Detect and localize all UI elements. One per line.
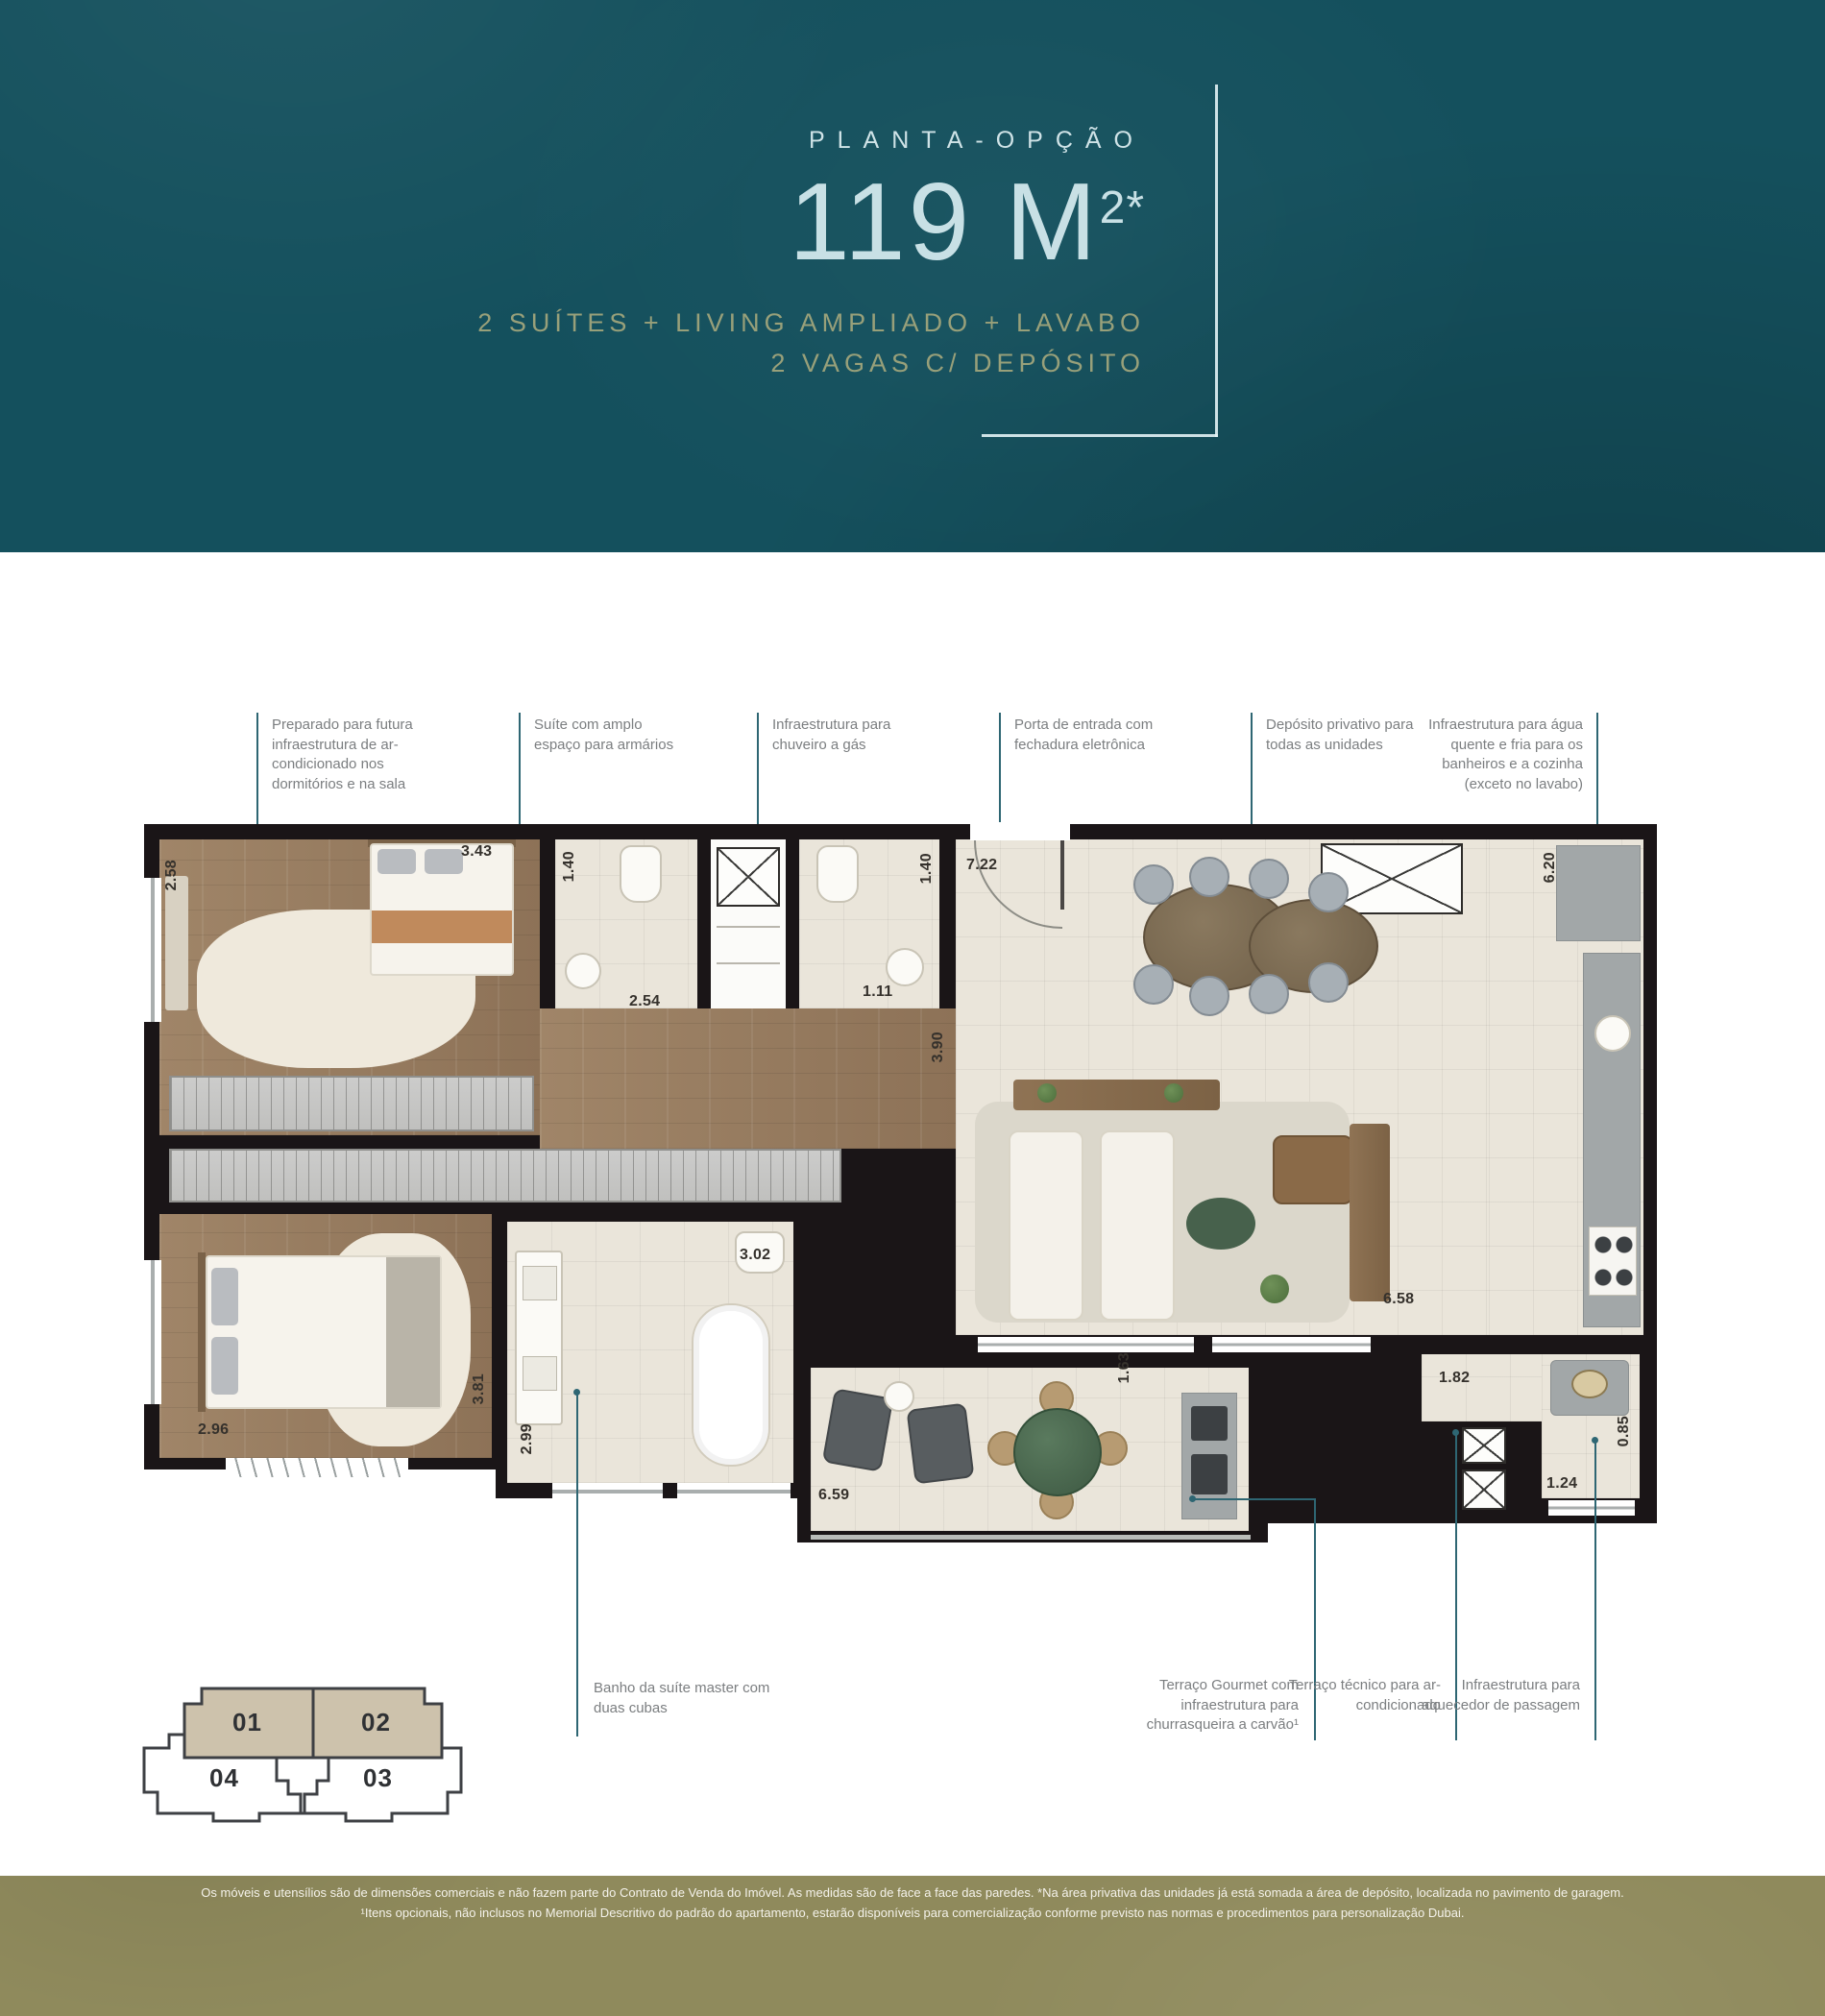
dim-terrace-length: 6.59	[818, 1487, 849, 1504]
callout-line-heater	[1594, 1441, 1596, 1740]
dim-churrasqueira-depth: 0.85	[1616, 1416, 1633, 1446]
callout-heater: Infraestrutura para aquecedor de passage…	[1417, 1676, 1580, 1715]
master-closet-row	[169, 1149, 841, 1202]
callout-hot-cold-water: Infraestrutura para água quente e fria p…	[1391, 716, 1583, 795]
floor-plan: 2.58 3.43 1.40 2.54 1.11 1.40 7.22 6.20 …	[144, 818, 1657, 1582]
window-churrasqueira	[1548, 1500, 1635, 1516]
dim-living-width: 7.22	[966, 857, 997, 874]
dim-kitchen-length: 6.20	[1542, 852, 1559, 883]
dim-terrace-depth: 1.63	[1116, 1352, 1133, 1383]
dining-chair-7	[1249, 974, 1289, 1014]
callout-dot-gourmet	[1189, 1495, 1196, 1502]
lavabo-sink	[886, 948, 924, 986]
closet-shelf-1	[717, 926, 780, 928]
dim-living-length: 6.58	[1383, 1291, 1414, 1308]
living-armchair	[1273, 1135, 1353, 1204]
closet-shelf-2	[717, 962, 780, 964]
dining-chair-1	[1133, 864, 1174, 905]
area-superscript: 2*	[1100, 182, 1145, 233]
dim-lavabo-width: 1.11	[863, 984, 892, 1001]
window-living-terrace-2	[1212, 1337, 1371, 1352]
terrace-table	[1013, 1408, 1102, 1496]
callout-gourmet-terrace: Terraço Gourmet com infraestrutura para …	[1097, 1676, 1299, 1736]
kitchen-cabinet	[1556, 845, 1641, 941]
dim-suite2-length: 3.43	[461, 843, 492, 861]
subtitle-line-1: 2 SUÍTES + LIVING AMPLIADO + LAVABO	[477, 303, 1145, 343]
callout-entry-lock: Porta de entrada com fechadura eletrônic…	[1014, 716, 1187, 755]
header-band: PLANTA-OPÇÃO 119 M2* 2 SUÍTES + LIVING A…	[0, 0, 1825, 552]
gourmet-grill	[1191, 1454, 1228, 1494]
living-sofa-2	[1100, 1130, 1175, 1321]
window-bath-2	[677, 1483, 791, 1500]
dim-suite2-width: 2.58	[163, 860, 181, 890]
area-title: 119 M2*	[477, 168, 1145, 278]
window-suite2-left	[144, 878, 161, 1022]
bath1-sink	[565, 953, 601, 989]
brochure-page: PLANTA-OPÇÃO 119 M2* 2 SUÍTES + LIVING A…	[0, 0, 1825, 2016]
dining-chair-4	[1308, 872, 1349, 912]
window-master-left	[144, 1260, 161, 1404]
master-pillow-2	[211, 1337, 238, 1395]
callout-ac-infra: Preparado para futura infraestrutura de …	[272, 716, 445, 795]
tech-terrace-passage	[1422, 1354, 1546, 1421]
dim-hall: 2.54	[629, 993, 660, 1010]
master-headboard	[198, 1252, 206, 1412]
callout-line-entry-door	[999, 713, 1001, 836]
suite2-wardrobe	[169, 1076, 534, 1131]
hall-corridor	[540, 1008, 956, 1149]
dim-master-depth: 3.81	[471, 1373, 488, 1404]
header-corner-line-vertical	[1215, 85, 1218, 437]
dining-chair-2	[1189, 857, 1229, 897]
dining-chair-5	[1133, 964, 1174, 1005]
terrace-chair-2	[906, 1403, 974, 1485]
suite2-blanket	[372, 911, 512, 943]
kitchen-sink	[1594, 1015, 1631, 1052]
lavabo-toilet	[816, 845, 859, 903]
dim-master-width: 2.96	[198, 1421, 229, 1439]
master-bathtub	[692, 1303, 770, 1467]
callout-dot-master-bath	[573, 1389, 580, 1396]
header-corner-line-horizontal	[982, 434, 1218, 437]
key-plan-label-02: 02	[361, 1708, 391, 1737]
dim-tech-passage: 1.82	[1439, 1370, 1470, 1387]
dim-corridor: 3.90	[930, 1032, 947, 1062]
key-plan-outline	[125, 1669, 480, 1871]
disclaimer-line-1: Os móveis e utensílios são de dimensões …	[115, 1882, 1710, 1903]
callout-dot-heater	[1592, 1437, 1598, 1444]
plan-option-eyebrow: PLANTA-OPÇÃO	[477, 127, 1145, 155]
living-plant	[1260, 1275, 1289, 1303]
subtitle-line-2: 2 VAGAS C/ DEPÓSITO	[477, 343, 1145, 383]
master-pillow-1	[211, 1268, 238, 1325]
footer-disclaimer: Os móveis e utensílios são de dimensões …	[115, 1882, 1710, 1923]
living-coffee-table	[1186, 1198, 1255, 1250]
tech-shaft-1	[1462, 1427, 1506, 1464]
suite2-dresser	[165, 876, 188, 1010]
callout-suite-closet: Suíte com amplo espaço para armários	[534, 716, 693, 755]
master-sink-2	[523, 1356, 557, 1391]
entry-door-leaf	[1060, 840, 1064, 910]
living-sofa-1	[1009, 1130, 1083, 1321]
window-bath-1	[552, 1483, 663, 1500]
terrace-side-table	[884, 1381, 914, 1412]
dim-masterbath-width: 3.02	[740, 1247, 770, 1264]
disclaimer-line-2: ¹Itens opcionais, não inclusos no Memori…	[115, 1903, 1710, 1923]
dining-chair-8	[1308, 962, 1349, 1003]
key-plan-label-04: 04	[209, 1763, 239, 1793]
terrace-railing	[811, 1535, 1251, 1540]
kitchen-stove	[1589, 1227, 1637, 1296]
dim-bath1-width: 1.40	[561, 851, 578, 882]
callout-line-gourmet-h	[1193, 1498, 1316, 1500]
dim-masterbath-depth: 2.99	[519, 1423, 536, 1454]
key-plan-label-01: 01	[232, 1708, 262, 1737]
console-plant-2	[1164, 1083, 1183, 1103]
closet-shaft-box	[717, 847, 780, 907]
area-number: 119 M	[789, 161, 1099, 283]
dining-chair-3	[1249, 859, 1289, 899]
suite2-pillow-1	[377, 849, 416, 874]
header-subtitle: 2 SUÍTES + LIVING AMPLIADO + LAVABO 2 VA…	[477, 303, 1145, 383]
callout-dot-tech-terrace	[1452, 1429, 1459, 1436]
churrasqueira-oval	[1571, 1370, 1608, 1398]
callout-master-bath: Banho da suíte master com duas cubas	[594, 1679, 771, 1718]
living-sideboard	[1350, 1124, 1390, 1301]
bath1-toilet	[620, 845, 662, 903]
suite2-pillow-2	[425, 849, 463, 874]
dim-churrasqueira-width: 1.24	[1546, 1475, 1577, 1493]
header-text-block: PLANTA-OPÇÃO 119 M2* 2 SUÍTES + LIVING A…	[477, 127, 1145, 383]
dining-chair-6	[1189, 976, 1229, 1016]
building-key-plan: 01 02 04 03	[125, 1669, 480, 1871]
window-master-folding-door	[226, 1458, 408, 1477]
master-sink-1	[523, 1266, 557, 1300]
entry-door-gap	[970, 822, 1070, 840]
window-living-terrace-1	[978, 1337, 1194, 1352]
gourmet-sink	[1191, 1406, 1228, 1441]
callout-line-master-bath	[576, 1393, 578, 1737]
callout-gas-shower: Infraestrutura para chuveiro a gás	[772, 716, 931, 755]
dim-lavabo-depth: 1.40	[918, 853, 936, 884]
console-plant-1	[1037, 1083, 1057, 1103]
key-plan-label-03: 03	[363, 1763, 393, 1793]
tech-shaft-2	[1462, 1469, 1506, 1510]
master-throw	[386, 1257, 440, 1407]
